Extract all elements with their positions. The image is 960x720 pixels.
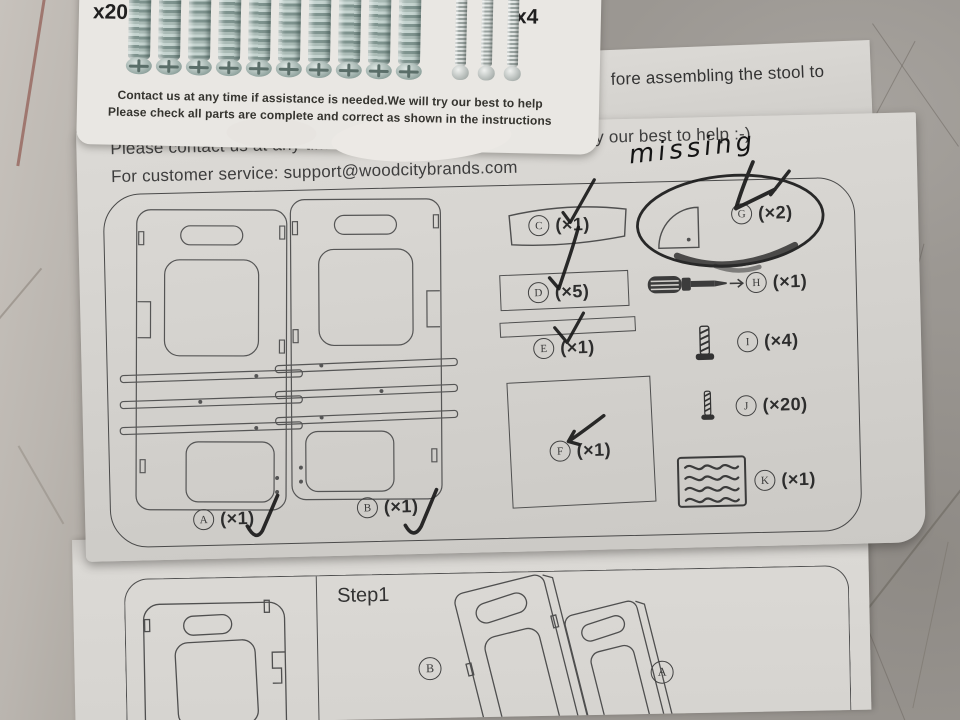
red-scratch: [16, 0, 46, 166]
missing-circle-mark: [634, 169, 826, 273]
screw: [216, 0, 244, 76]
photo-scene: fore assembling the stool to Step1: [0, 0, 960, 720]
panel-a-3d-drawing: [551, 597, 671, 717]
bolt: [452, 0, 471, 80]
surface-scratch: [0, 268, 42, 323]
surface-scratch: [18, 446, 64, 525]
screw: [156, 0, 184, 75]
screw: [126, 0, 154, 75]
instruction-sheet: Please contact us at any time if assista…: [76, 112, 926, 562]
missing-circle-smudge: [677, 245, 795, 266]
bolt: [478, 0, 497, 81]
under-sheet-fragment-text: fore assembling the stool to: [610, 62, 824, 90]
check-b: [405, 490, 438, 534]
hardware-packet: x20 x4 Contact us at any time if assista…: [76, 0, 602, 155]
screw-set: [126, 0, 424, 80]
packet-notes: Contact us at any time if assistance is …: [95, 86, 566, 131]
screw: [336, 0, 364, 79]
handwritten-marks: [76, 112, 926, 562]
screw: [366, 0, 394, 80]
check-d: [548, 227, 579, 289]
screw: [276, 0, 304, 78]
floor-scratch: [912, 542, 948, 708]
step-title: Step1: [337, 584, 390, 608]
screw: [396, 0, 424, 80]
bolt-set: [452, 0, 523, 81]
screw: [186, 0, 214, 76]
check-f-arrow: [568, 416, 605, 445]
screw: [306, 0, 334, 78]
check-c: [562, 180, 595, 223]
bolt: [504, 0, 523, 81]
check-a: [247, 495, 279, 535]
screw: [246, 0, 274, 77]
check-e: [554, 313, 584, 343]
count-label-x20: x20: [93, 0, 129, 25]
flat-panel-drawing: [135, 592, 300, 720]
